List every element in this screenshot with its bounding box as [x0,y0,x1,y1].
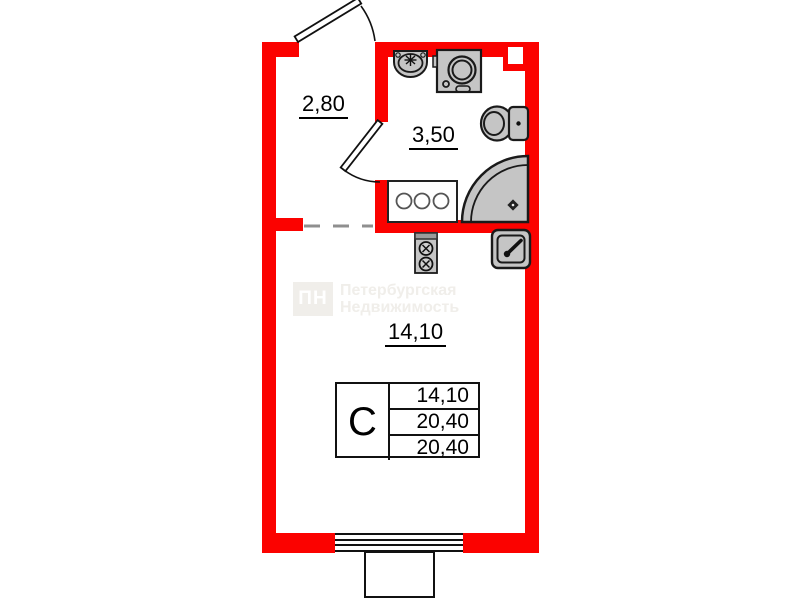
total-area-value: 20,40 [390,410,478,436]
vent-shaft [508,47,523,64]
toilet-icon [481,107,528,141]
wall-bottom-right-segment [463,533,539,553]
apartment-info-table: С 14,10 20,40 20,40 [335,382,480,458]
hallway-area-label: 2,80 [299,92,348,119]
entrance-door-swing-arc [361,6,375,41]
cooktop-counter-icon [388,181,457,222]
entrance-door [295,0,375,42]
faucet-icon [405,54,417,66]
wall-left [262,42,276,553]
wall-hall-stub [262,218,303,231]
floorplan-canvas [0,0,800,600]
bathroom-door-leaf [341,120,383,171]
stove-unit-icon [415,233,437,273]
window [335,533,463,553]
apartment-type-cell: С [337,384,390,460]
bathroom-door [341,120,383,182]
corner-shower-icon [462,156,528,222]
wall-bathroom-lower [375,180,388,222]
wall-bathroom-upper [375,42,388,122]
kitchen-sink-icon [492,230,530,268]
washing-machine-icon [433,50,481,92]
wall-bottom-left-segment [262,533,335,553]
bathroom-sink-icon [394,51,427,77]
living-room-area-label: 14,10 [385,320,446,347]
wall-top-left-segment [262,42,299,57]
floorplan-page: ПН Петербургская Недвижимость 2,80 3,50 … [0,0,800,600]
bathroom-area-label: 3,50 [409,123,458,150]
bathroom-door-swing-arc [344,170,380,182]
entrance-door-leaf [295,0,362,42]
balcony [365,552,434,597]
living-area-value: 14,10 [390,384,478,410]
reduced-area-value: 20,40 [390,436,478,460]
